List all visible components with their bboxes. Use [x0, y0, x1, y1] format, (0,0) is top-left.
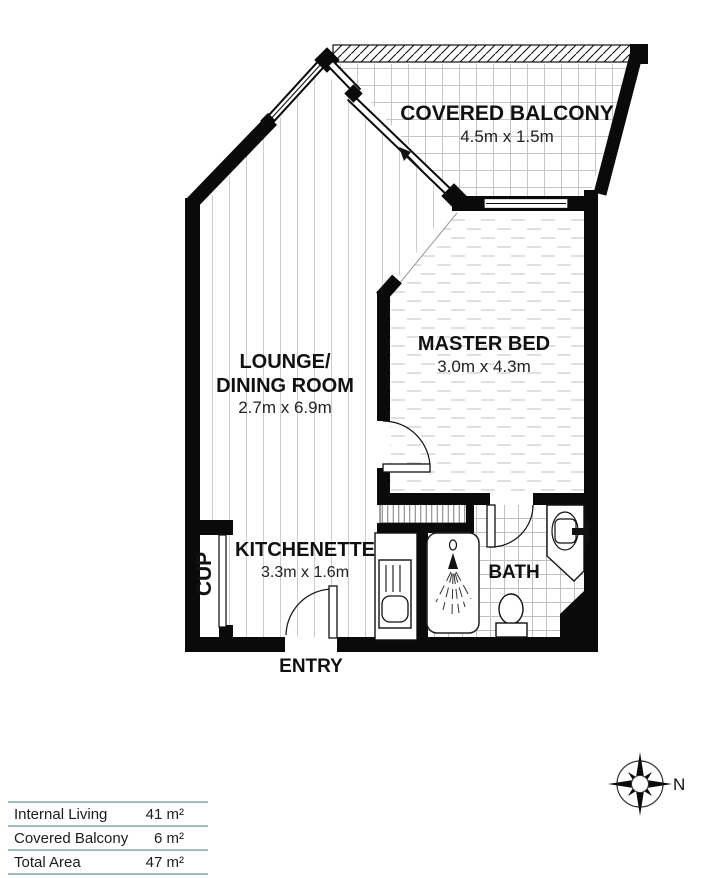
kitchenette-label: KITCHENETTE — [235, 539, 375, 561]
wall-master-bottom-right — [533, 493, 598, 505]
legend-label: Covered Balcony — [14, 830, 128, 847]
entry-label: ENTRY — [279, 656, 343, 677]
wall-master-left — [377, 291, 390, 421]
area-legend: Internal Living 41 m² Covered Balcony 6 … — [8, 801, 208, 875]
floor-plan-svg: COVERED BALCONY 4.5m x 1.5m LOUNGE/ DINI… — [0, 0, 723, 878]
kitchenette-dims: 3.3m x 1.6m — [261, 564, 349, 581]
shower-icon — [427, 533, 479, 633]
kitchen-bench — [375, 533, 417, 640]
master-bed-label: MASTER BED — [418, 333, 550, 355]
sink-bowl-icon — [382, 596, 408, 622]
master-bed-dims: 3.0m x 4.3m — [437, 357, 531, 376]
legend-row-covered-balcony: Covered Balcony 6 m² — [8, 825, 208, 849]
bath-label: BATH — [488, 562, 539, 583]
cupboard-door-icon — [219, 535, 226, 627]
legend-value: 41 m² — [134, 806, 184, 823]
balcony-dims: 4.5m x 1.5m — [460, 127, 554, 146]
compass-rose-icon: N — [600, 748, 700, 820]
lounge-label-line2: DINING ROOM — [216, 375, 354, 397]
legend-label: Internal Living — [14, 806, 107, 823]
wall-cupboard-top — [197, 520, 233, 535]
floorplan-page: COVERED BALCONY 4.5m x 1.5m LOUNGE/ DINI… — [0, 0, 723, 878]
cupboard-label: CUP — [193, 552, 216, 596]
legend-row-internal-living: Internal Living 41 m² — [8, 801, 208, 825]
balcony-railing-band — [333, 45, 647, 62]
window-master-bed — [484, 199, 568, 209]
legend-value: 6 m² — [134, 830, 184, 847]
legend-value: 47 m² — [134, 854, 184, 871]
balcony-label: COVERED BALCONY — [400, 102, 614, 125]
legend-row-total-area: Total Area 47 m² — [8, 849, 208, 875]
lounge-dims: 2.7m x 6.9m — [238, 398, 332, 417]
wall-robe-bottom — [377, 523, 472, 533]
legend-label: Total Area — [14, 854, 81, 871]
robe — [380, 503, 468, 523]
lounge-label-line1: LOUNGE/ — [239, 351, 331, 373]
north-label: N — [673, 775, 685, 794]
wall-bottom-left — [185, 637, 285, 652]
